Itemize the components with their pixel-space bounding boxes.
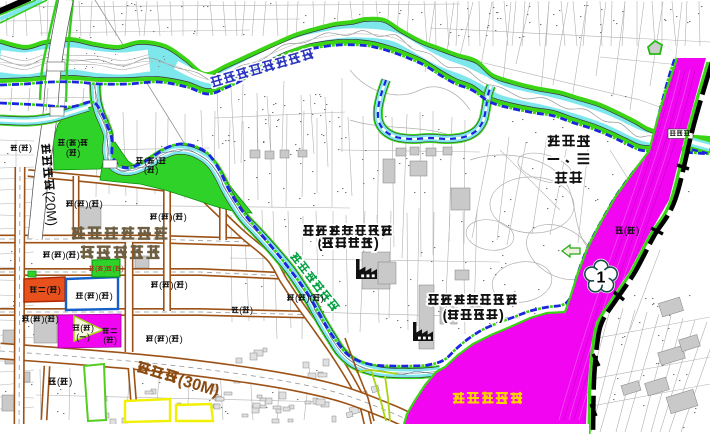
svg-text:(20M): (20M) — [42, 190, 60, 226]
svg-text:): ) — [104, 264, 106, 273]
svg-text:): ) — [100, 199, 103, 210]
svg-text:): ) — [110, 291, 113, 302]
svg-text:1: 1 — [597, 270, 606, 287]
svg-text:)(: )( — [85, 199, 92, 210]
svg-text:): ) — [77, 148, 80, 159]
svg-text:): ) — [56, 314, 59, 325]
svg-text:)(: )( — [306, 293, 313, 304]
svg-text:): ) — [77, 250, 80, 261]
svg-text:)(: )( — [95, 291, 102, 302]
svg-text:): ) — [185, 280, 188, 291]
svg-text:): ) — [184, 212, 187, 223]
svg-text:(: ( — [239, 305, 242, 315]
svg-text:(: ( — [76, 332, 79, 342]
svg-text:): ) — [155, 165, 158, 176]
svg-text:): ) — [87, 332, 90, 342]
svg-text:): ) — [180, 334, 183, 345]
svg-text:): ) — [69, 377, 72, 388]
svg-text:)(: )( — [41, 314, 48, 325]
svg-text:): ) — [121, 264, 123, 273]
svg-text:): ) — [499, 308, 504, 324]
svg-text:)(: )( — [165, 334, 172, 345]
svg-text:): ) — [114, 335, 117, 345]
svg-text:): ) — [636, 226, 639, 237]
svg-text:): ) — [91, 323, 94, 333]
svg-text:)(: )( — [169, 212, 176, 223]
svg-text:(: ( — [18, 143, 21, 153]
svg-text:): ) — [250, 305, 253, 315]
svg-text:)(: )( — [62, 250, 69, 261]
svg-text:(: ( — [80, 323, 83, 333]
svg-text:): ) — [58, 285, 61, 296]
svg-text:(: ( — [103, 335, 106, 345]
svg-text:): ) — [29, 143, 32, 153]
svg-text:): ) — [321, 293, 324, 304]
svg-text:)(: )( — [170, 280, 177, 291]
svg-text:): ) — [374, 236, 379, 252]
